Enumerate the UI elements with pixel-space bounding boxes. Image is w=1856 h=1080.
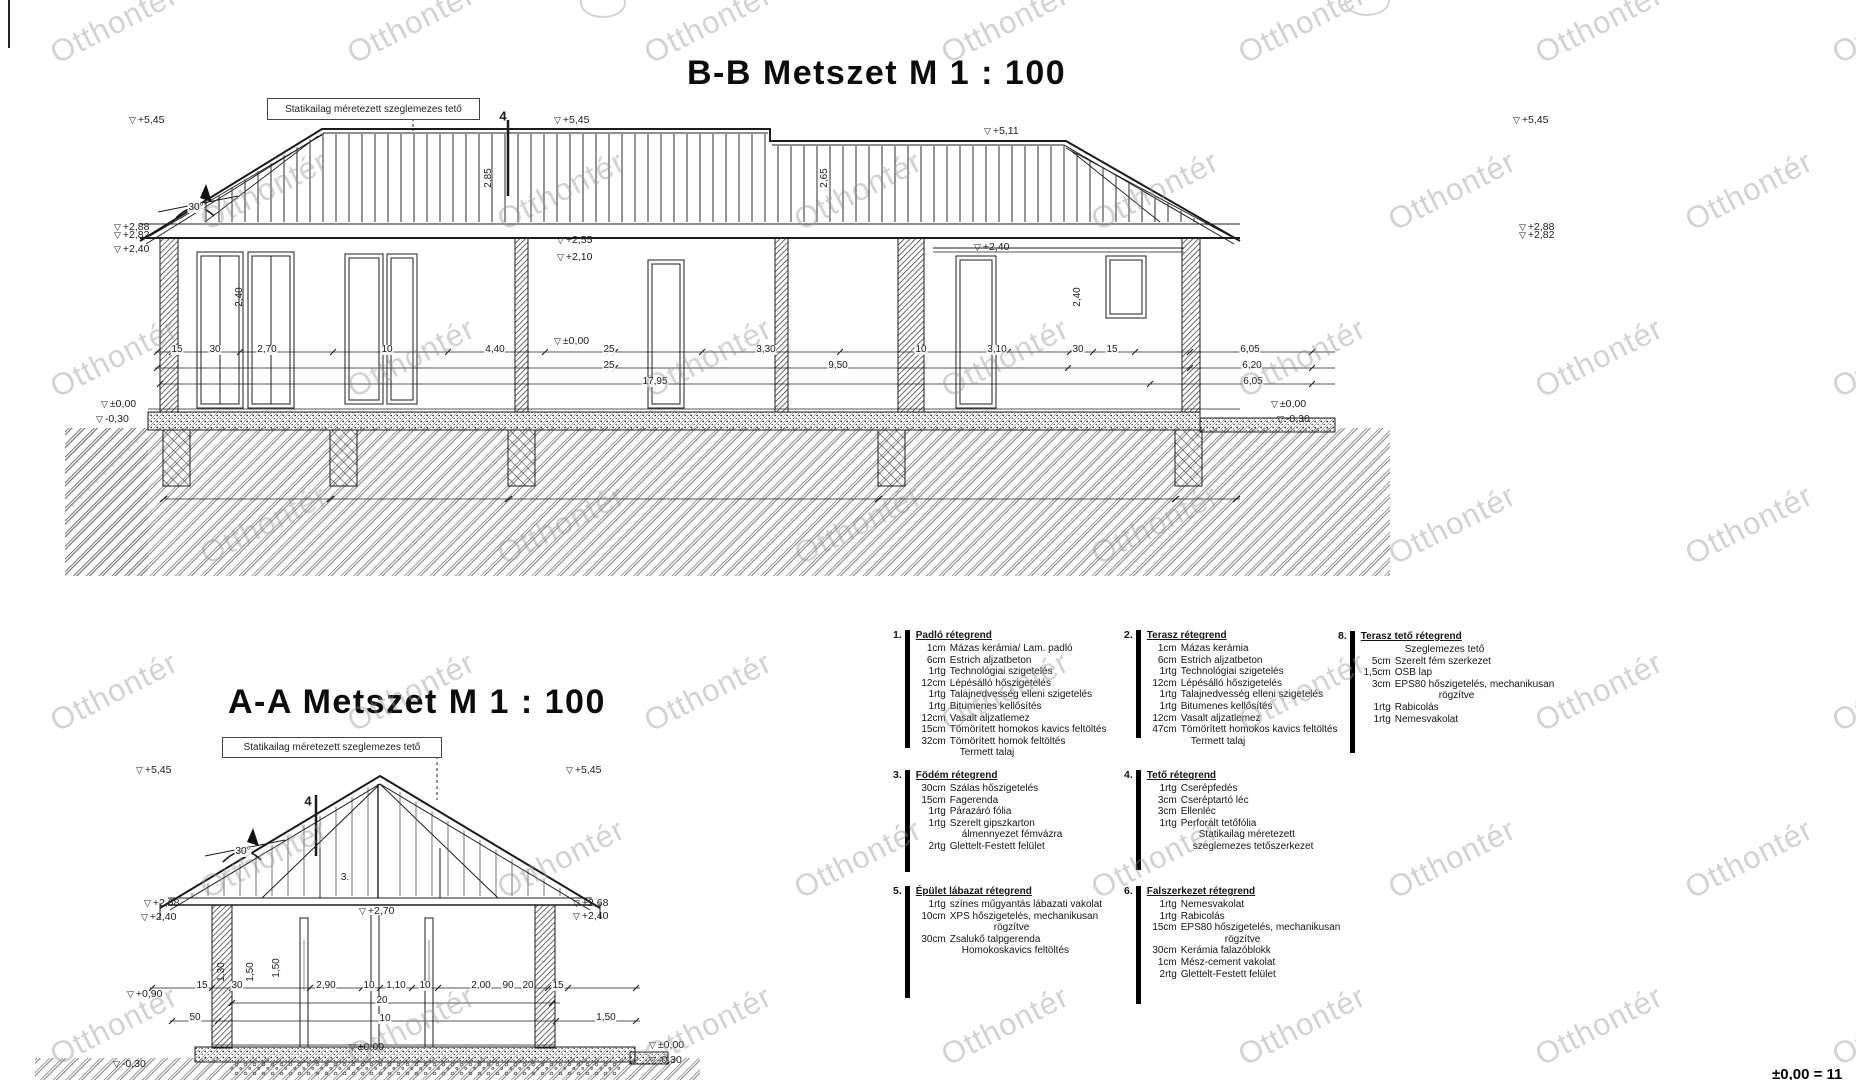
aa-section xyxy=(35,756,700,1080)
legend-line: 1rtgSzerelt gipszkarton xyxy=(916,818,1063,830)
legend-line: 1rtgPerforált tetőfólia xyxy=(1147,818,1314,830)
legend-line: Termett talaj xyxy=(1147,736,1338,748)
legend-block-terrace: 2. Terasz rétegrend 1cmMázas kerámia6cmE… xyxy=(1124,630,1338,747)
legend-line: 1rtgNemesvakolat xyxy=(1147,899,1341,911)
legend-title: Tető rétegrend xyxy=(1147,770,1314,782)
legend-line: 1cmMázas kerámia/ Lam. padló xyxy=(916,643,1107,655)
legend-title: Padló rétegrend xyxy=(916,630,1107,642)
legend-line: 1rtgRabicolás xyxy=(1361,702,1555,714)
legend-line: Homokoskavics feltöltés xyxy=(916,945,1102,957)
legend-block-plinth: 5. Épület lábazat rétegrend 1rtgszínes m… xyxy=(893,886,1102,998)
legend-bar xyxy=(1136,886,1141,1004)
legend-bar xyxy=(905,886,910,998)
legend-number: 3. xyxy=(893,770,902,780)
legend-line: álmennyezet fémvázra xyxy=(916,829,1063,841)
legend-line: szeglemezes tetőszerkezet xyxy=(1147,841,1314,853)
legend-line: 15cmTömörített homokos kavics feltöltés xyxy=(916,724,1107,736)
legend-line: 3cmEPS80 hőszigetelés, mechanikusan xyxy=(1361,679,1555,691)
datum-note: ±0,00 = 11 xyxy=(1772,1066,1842,1080)
legend-number: 5. xyxy=(893,886,902,896)
legend-line: 1rtgPárazáró fólia xyxy=(916,806,1063,818)
legend-number: 1. xyxy=(893,630,902,640)
legend-line: Szeglemezes tető xyxy=(1361,644,1555,656)
legend-line: 3cmCseréptartó léc xyxy=(1147,795,1314,807)
legend-line: 6cmEstrich aljzatbeton xyxy=(1147,655,1338,667)
legend-line: 12cmVasalt aljzatlemez xyxy=(916,713,1107,725)
legend-block-roof: 4. Tető rétegrend 1rtgCserépfedés3cmCser… xyxy=(1124,770,1313,870)
legend-bar xyxy=(1136,630,1141,738)
legend-line: 1cmMész-cement vakolat xyxy=(1147,957,1341,969)
legend-line: 6cmEstrich aljzatbeton xyxy=(916,655,1107,667)
blueprint-page: B-B Metszet M 1 : 100 A-A Metszet M 1 : … xyxy=(0,0,1856,1080)
legend-bar xyxy=(1136,770,1141,870)
legend-line: 12cmLépésálló hőszigetelés xyxy=(1147,678,1338,690)
legend-number: 4. xyxy=(1124,770,1133,780)
legend-line: 1,5cmOSB lap xyxy=(1361,667,1555,679)
legend-line: 1rtgTalajnedvesség elleni szigetelés xyxy=(916,689,1107,701)
legend-block-ceiling: 3. Födém rétegrend 30cmSzálas hőszigetel… xyxy=(893,770,1062,872)
legend-line: 1rtgNemesvakolat xyxy=(1361,714,1555,726)
legend-bar xyxy=(905,770,910,872)
legend-line: 15cmEPS80 hőszigetelés, mechanikusan xyxy=(1147,922,1341,934)
legend-line: Termett talaj xyxy=(916,747,1107,759)
legend-line: 12cmVasalt aljzatlemez xyxy=(1147,713,1338,725)
legend-line: 2rtgGlettelt-Festett felület xyxy=(1147,969,1341,981)
legend-line: 30cmSzálas hőszigetelés xyxy=(916,783,1063,795)
bb-section xyxy=(65,118,1390,576)
legend-line: 3cmEllenléc xyxy=(1147,806,1314,818)
legend-line: Statikailag méretezett xyxy=(1147,829,1314,841)
legend-line: 5cmSzerelt fém szerkezet xyxy=(1361,656,1555,668)
roof-note-aa: Statikailag méretezett szeglemezes tető xyxy=(222,737,442,758)
legend-line: 1rtgBitumenes kellősítés xyxy=(916,701,1107,713)
legend-line: 1rtgTechnológiai szigetelés xyxy=(1147,666,1338,678)
legend-line: 1rtgTalajnedvesség elleni szigetelés xyxy=(1147,689,1338,701)
legend-line: rögzítve xyxy=(1147,934,1341,946)
legend-title: Födém rétegrend xyxy=(916,770,1063,782)
legend-line: 1rtgTechnológiai szigetelés xyxy=(916,666,1107,678)
legend-line: 30cmZsalukő talpgerenda xyxy=(916,934,1102,946)
legend-number: 2. xyxy=(1124,630,1133,640)
legend-line: 2rtgGlettelt-Festett felület xyxy=(916,841,1063,853)
legend-number: 6. xyxy=(1124,886,1133,896)
legend-block-floor: 1. Padló rétegrend 1cmMázas kerámia/ Lam… xyxy=(893,630,1107,759)
legend-bar xyxy=(905,630,910,748)
roof-note-bb: Statikailag méretezett szeglemezes tető xyxy=(267,98,480,120)
legend-line: 30cmKerámia falazóblokk xyxy=(1147,945,1341,957)
legend-line: 12cmLépésálló hőszigetelés xyxy=(916,678,1107,690)
legend-line: 1rtgBitumenes kellősítés xyxy=(1147,701,1338,713)
legend-line: 15cmFagerenda xyxy=(916,795,1063,807)
legend-title: Falszerkezet rétegrend xyxy=(1147,886,1341,898)
legend-line: 1cmMázas kerámia xyxy=(1147,643,1338,655)
legend-line: 47cmTömörített homokos kavics feltöltés xyxy=(1147,724,1338,736)
legend-line: 1rtgCserépfedés xyxy=(1147,783,1314,795)
legend-title: Terasz rétegrend xyxy=(1147,630,1338,642)
legend-block-terrace-roof: 8. Terasz tető rétegrend Szeglemezes tet… xyxy=(1338,631,1554,753)
legend-title: Épület lábazat rétegrend xyxy=(916,886,1102,898)
legend-line: 32cmTömörített homok feltöltés xyxy=(916,736,1107,748)
legend-number: 8. xyxy=(1338,631,1347,641)
legend-line: 1rtgRabicolás xyxy=(1147,911,1341,923)
legend-line: 1rtgszínes műgyantás lábazati vakolat xyxy=(916,899,1102,911)
legend-line: 10cmXPS hőszigetelés, mechanikusan xyxy=(916,911,1102,923)
legend-block-wall: 6. Falszerkezet rétegrend 1rtgNemesvakol… xyxy=(1124,886,1340,1004)
legend-title: Terasz tető rétegrend xyxy=(1361,631,1555,643)
legend-line: rögzítve xyxy=(916,922,1102,934)
legend-bar xyxy=(1350,631,1355,753)
legend-line: rögzítve xyxy=(1361,690,1555,702)
